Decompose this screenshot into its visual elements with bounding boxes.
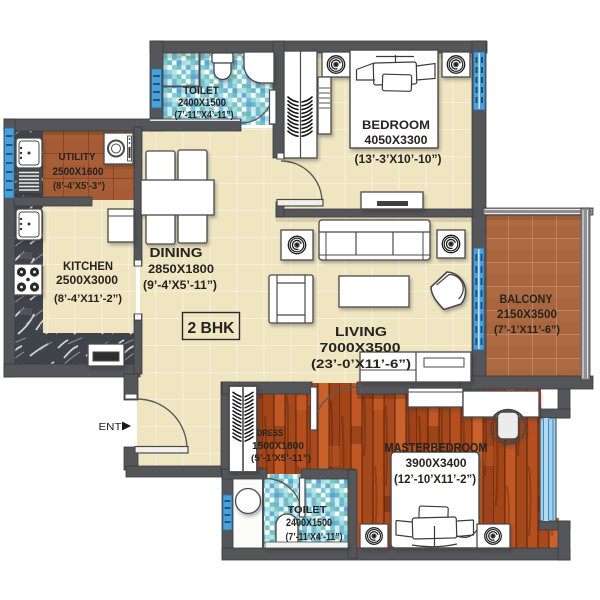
- svg-text:TOILET: TOILET: [183, 85, 219, 97]
- svg-text:ENT: ENT: [99, 421, 123, 433]
- svg-text:UTILITY: UTILITY: [59, 151, 96, 163]
- svg-text:(13’-3’X10’-10”): (13’-3’X10’-10”): [355, 154, 442, 166]
- svg-text:MASTERBEDROOM: MASTERBEDROOM: [385, 441, 488, 455]
- svg-text:(7’-11’’X4’-11”): (7’-11’’X4’-11”): [175, 109, 234, 121]
- svg-text:2500X3000: 2500X3000: [56, 275, 118, 287]
- svg-text:(8’-4’X11’-2”): (8’-4’X11’-2”): [54, 293, 122, 305]
- svg-text:2850X1800: 2850X1800: [148, 262, 214, 276]
- svg-text:(8’-4’X5’-3”): (8’-4’X5’-3”): [53, 180, 105, 192]
- svg-text:BALCONY: BALCONY: [500, 294, 553, 306]
- svg-text:2150X3500: 2150X3500: [497, 309, 557, 321]
- svg-text:LIVING: LIVING: [335, 325, 387, 339]
- svg-text:2500X1600: 2500X1600: [53, 166, 104, 178]
- svg-text:(23’-0’X11’-6”): (23’-0’X11’-6”): [311, 357, 411, 371]
- svg-text:7000X3500: 7000X3500: [320, 341, 401, 355]
- svg-text:3900X3400: 3900X3400: [406, 456, 467, 470]
- svg-text:(7’-1’X11’-6”): (7’-1’X11’-6”): [494, 324, 560, 336]
- svg-text:(12’-10’X11’-2”): (12’-10’X11’-2”): [394, 472, 476, 486]
- svg-text:2 BHK: 2 BHK: [188, 320, 235, 337]
- svg-text:KITCHEN: KITCHEN: [63, 261, 113, 273]
- svg-text:(9’-4’X5’-11”): (9’-4’X5’-11”): [143, 280, 217, 292]
- svg-text:4050X3300: 4050X3300: [365, 133, 428, 147]
- svg-text:TOILET: TOILET: [288, 504, 328, 516]
- svg-text:DRESS: DRESS: [257, 428, 283, 439]
- svg-text:2400X1500: 2400X1500: [286, 517, 332, 529]
- svg-text:DINING: DINING: [150, 246, 203, 260]
- svg-text:2400X1500: 2400X1500: [178, 97, 226, 109]
- svg-text:BEDROOM: BEDROOM: [362, 118, 430, 132]
- svg-text:(7’-11’X4’-11”): (7’-11’X4’-11”): [286, 531, 343, 543]
- svg-text:1500X1800: 1500X1800: [252, 441, 304, 452]
- svg-text:(5’-1’X5’-11”): (5’-1’X5’-11”): [251, 453, 311, 464]
